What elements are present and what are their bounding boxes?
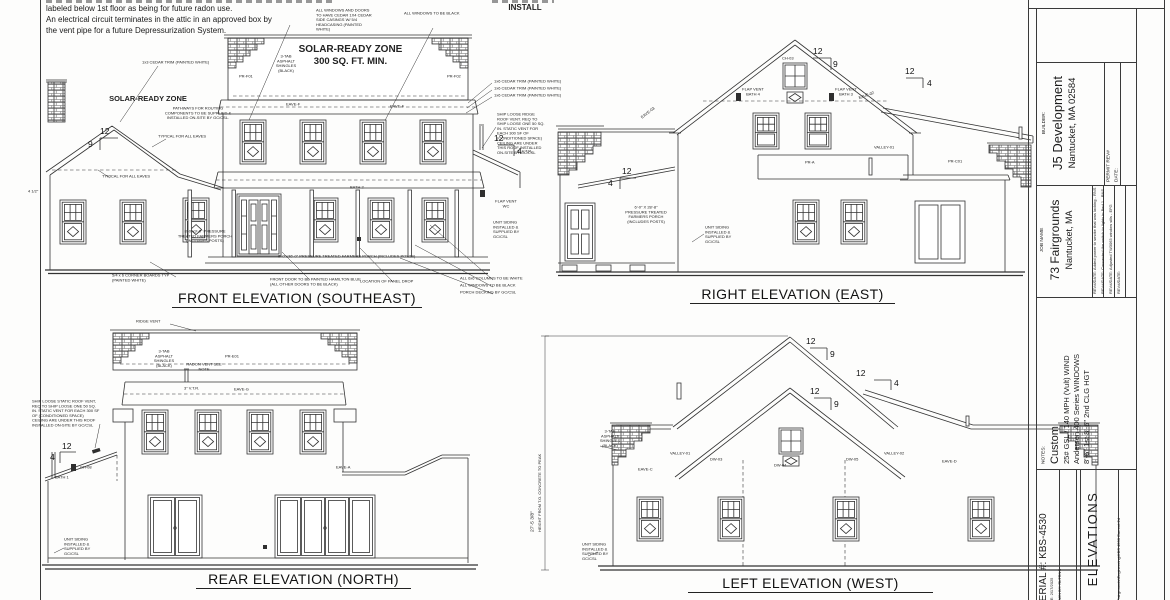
blueprint-sheet: labeled below 1st floor as being for fut… [0,0,1170,600]
cedar16-note: 1x6 CEDAR TRIM (PAINTED WHITE) [494,93,561,98]
serial-block: SERIAL #: KBS-4530 DATE: 2/17/2025 DRAWN… [1037,468,1071,600]
revision-row: REV#/DATE: Added power to smoke that was… [1093,241,1097,294]
job-block: JOB NAME 73 Fairgrounds Nantucket, MA [1039,186,1093,294]
pitch-run: 4 [517,146,522,156]
pitch-rise: 12 [810,386,819,396]
notes-wind: 25# GSL / 140 MPH (Vult) WIND [1062,302,1072,464]
job-name: 73 Fairgrounds [1048,186,1063,294]
siding-note: UNIT SIDING INSTALLED & SUPPLIED BY GC/C… [493,220,523,239]
flap-vent-note: FLAP VENT BATH 4 [740,87,766,97]
builder-name: J5 Development [1050,63,1066,183]
pitch-rise: 12 [813,46,822,56]
ref-code: EAVE-A [336,465,350,470]
pitch-run: 9 [833,59,838,69]
ref-code: DW-04 [774,463,786,468]
siding-note: UNIT SIDING INSTALLED & SUPPLIED BY GC/C… [705,225,735,244]
pitch-rise: 12 [62,441,71,451]
porch-note: 6'-0" X 28'-8" PRESSURE TREATED FARMERS … [624,205,668,224]
sheet-title: ELEVATIONS [1085,483,1100,595]
pitch-run: 9 [834,399,839,409]
ref-code: EAVE-F [390,104,404,109]
tb-line [1125,185,1126,297]
solar-zone-left-label: SOLAR-READY ZONE [92,94,204,103]
date-value: DATE: 2/17/2025 [1050,538,1054,600]
casing-note: ALL WINDOWS AND DOORS TO HAVE CEDAR 1X4 … [316,8,374,32]
panel-drop-note: LOCATION OF PANEL DROP [360,279,413,284]
right-elevation-title: RIGHT ELEVATION (EAST) [690,286,895,304]
flap-vent-note: BATH 1 [55,475,69,480]
ridge-vent-note: RIDGE VENT [136,319,160,324]
file-path-block: Fairgrounds\Engineering\KBS 4530 Current… [1117,495,1127,600]
job-label: JOB NAME [1039,208,1044,273]
pitch-run: 4 [608,178,613,188]
revision-row: REV#/DATE: [1117,241,1121,294]
tb-line [1076,469,1077,600]
pitch-rise: 12 [905,66,914,76]
front-door-note: FRONT DOOR TO BE PAINTED HAMILTON BLUE (… [270,277,365,287]
notes-block: NOTES: Custom 25# GSL / 140 MPH (Vult) W… [1041,302,1101,464]
ref-code: CH-08 [80,465,92,470]
tb-line [1080,469,1081,600]
ref-code: DW-03 [710,457,722,462]
dim-note: 4 1/2" [28,189,38,194]
cedar16-note: 1x6 CEDAR TRIM (PAINTED WHITE) [494,86,561,91]
siding-note: UNIT SIDING INSTALLED & SUPPLIED BY GC/C… [582,542,612,561]
porch-note: 8'-0"x9'-0" PRESSURE TREATED FARMERS POR… [178,229,233,243]
titleblock-divider [1028,0,1029,600]
shingles-note: 3-TAB ASPHALT SHINGLES (BLACK) [598,429,622,448]
sheet-right-border [1164,0,1165,600]
typ-eaves-note: TYPICAL FOR ALL EAVES [158,134,206,139]
windows-black-note: ALL WINDOWS TO BE BLACK [460,283,516,288]
permit-date-label: DATE: [1114,111,1119,182]
flap-vent-note: FLAP VENT BATH 3 [833,87,859,97]
serial-number: SERIAL #: KBS-4530 [1037,468,1050,600]
columns-note: ALL 6x6 COLUMNS TO BE WHITE [460,276,523,281]
typ-eaves-note: TYPICAL FOR ALL EAVES [102,174,150,179]
right-elevation-drawing [556,40,1033,276]
pitch-rise: 12 [100,126,109,136]
revision-row: REV#/DATE: Adjusted TW3063 window sills … [1109,241,1113,294]
notes-label: NOTES: [1041,367,1046,464]
sheet-title-block: ELEVATIONS [1085,483,1103,595]
ref-code: EAVE-F [286,102,300,107]
pitch-run: 4 [894,378,899,388]
windows-black-note: ALL WINDOWS TO BE BLACK [404,11,460,16]
decking-note: PORCH DECKING BY GC/CSL [460,290,516,295]
ref-code: VALLEY-01 [874,145,894,150]
titleblock-top-line [1028,8,1164,9]
sheet-left-border [40,0,41,600]
siding-note: UNIT SIDING INSTALLED & SUPPLIED BY GC/C… [64,537,94,556]
ref-code: CH-03 [782,56,794,61]
pitch-rise: 12 [494,133,503,143]
shingles-note: 3-TAB ASPHALT SHINGLES (BLACK) [272,54,300,73]
permit-block: PERMIT REV# DATE: [1106,64,1134,182]
builder-label: BUILDER: [1041,87,1046,159]
job-city: Nantucket, MA [1063,186,1076,294]
ref-code: PR-F02 [447,74,461,79]
ref-code: VALLEY-02 [884,451,904,456]
ref-code: PR-F01 [239,74,253,79]
dimension-label: HEIGHT FROM T.O. CONCRETE TO PEAK [538,457,542,532]
rear-elevation-title: REAR ELEVATION (NORTH) [196,571,411,589]
builder-city: Nantucket, MA 02584 [1066,63,1079,183]
solar-zone-left-subnote: PATHWAYS FOR ROUTING COMPONENTS TO BE SU… [159,106,237,120]
ref-code: PR-A [805,160,815,165]
tb-line [1036,297,1136,298]
porch-long-note: 8'-0"x36'-0" PRESSURE TREATED FARMERS PO… [278,254,415,259]
ref-code: PR-C01 [948,159,962,164]
cedar-trim-note: 1x3 CEDAR TRIM (PAINTED WHITE) [142,60,209,65]
ref-code: EAVE-G [234,387,249,392]
cedar16-note: 1x6 CEDAR TRIM (PAINTED WHITE) [494,79,561,84]
revision-block: REV#/DATE: Added power to smoke that was… [1093,188,1125,294]
pitch-rise: 12 [806,336,815,346]
ref-code: BATH 2 [350,185,364,190]
ship-loose-note: SHIP LOOSE STATIC ROOF VENT, REQ TO SHIP… [32,399,100,428]
drawn-by-value: DRAWN BY: RLTRNS [1058,538,1062,600]
builder-block: BUILDER: J5 Development Nantucket, MA 02… [1041,63,1101,183]
pitch-rise: 12 [856,368,865,378]
pitch-run: 9 [88,139,93,149]
vtr-note: 3" V.T.R. [184,386,199,391]
radon-vent-note: RADON VENT SEE NOTE [181,362,227,372]
notes-clg: 8'-6" 1st 8'-6" 2nd CLG HGT [1082,302,1092,464]
dimension-value: 27'-5 3/8" [530,439,535,532]
permit-rev-label: PERMIT REV# [1106,111,1111,182]
rear-elevation-drawing [42,324,478,569]
ref-code: VALLEY-01 [670,451,690,456]
file-path: Fairgrounds\Engineering\KBS 4530 Current… [1117,548,1121,600]
ref-code: EAVE-D [942,459,957,464]
pitch-run: 9 [830,349,835,359]
corner-boards-note: 5/4 x 6 CORNER BOARDS TYP (PAINTED WHITE… [112,273,182,283]
revision-row: REV#/DATE: Connected the switch to light… [1101,241,1105,294]
height-dimension: 27'-5 3/8" HEIGHT FROM T.O. CONCRETE TO … [530,382,546,532]
tb-line [1136,8,1137,600]
ref-code: PR-E01 [225,354,239,359]
ref-code: EAVE-C [638,467,653,472]
front-elevation-title: FRONT ELEVATION (SOUTHEAST) [172,290,422,308]
pitch-run: 4 [50,452,55,462]
left-elevation-title: LEFT ELEVATION (WEST) [688,575,933,593]
left-elevation-drawing [541,336,1100,570]
ref-code: DW-05 [846,457,858,462]
install-note: INSTALL [480,3,570,13]
pitch-run: 4 [927,78,932,88]
pitch-rise: 12 [622,166,631,176]
notes-windows: Andersen 400 Series WINDOWS [1072,302,1082,464]
notes-custom: Custom [1049,302,1062,464]
solar-zone-main-label: SOLAR-READY ZONE 300 SQ. FT. MIN. [283,44,418,67]
flap-vent-note: FLAP VENT WC [495,199,517,209]
shingles-note: 3-TAB ASPHALT SHINGLES (BLACK) [151,349,177,368]
